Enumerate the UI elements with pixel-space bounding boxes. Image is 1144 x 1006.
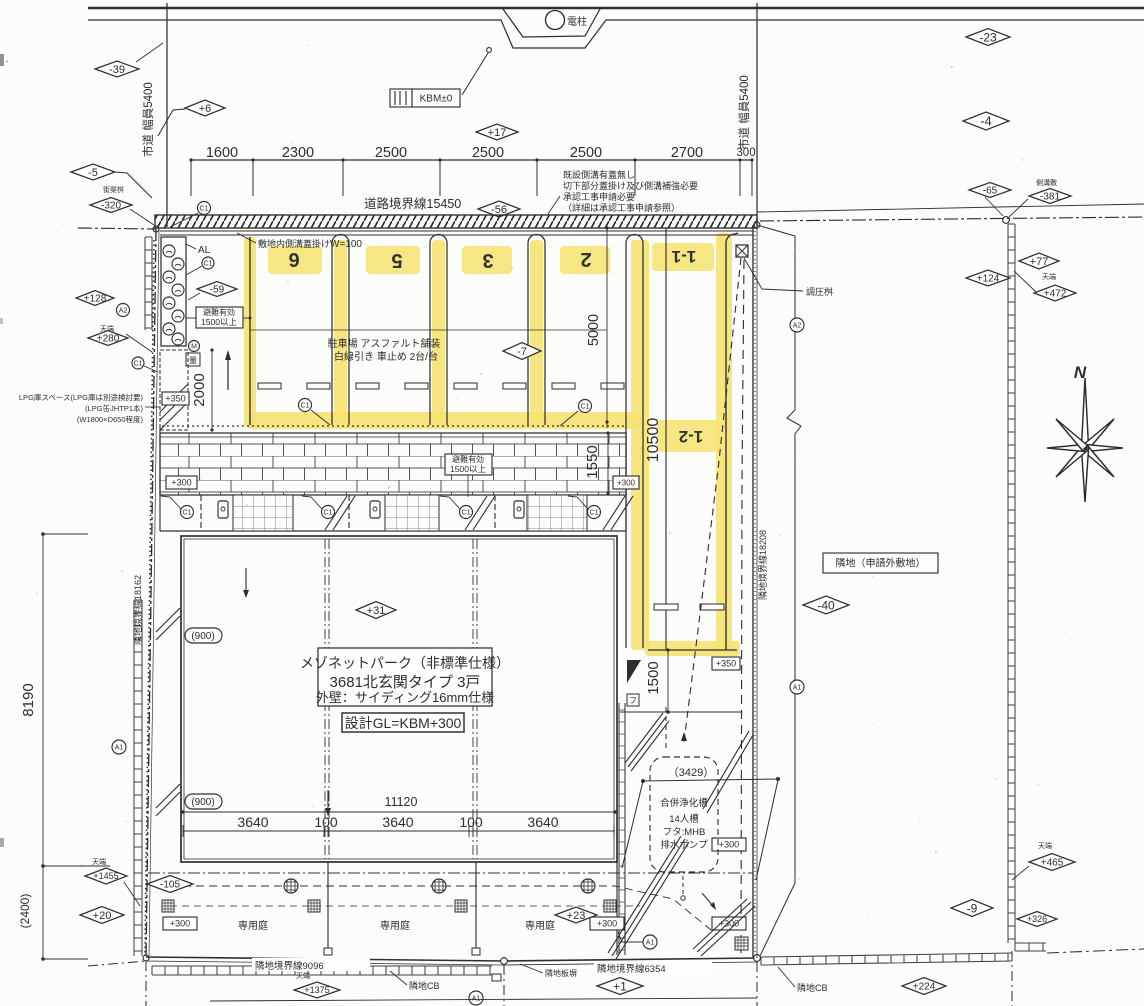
svg-text:（詳細は承認工事申請参照）: （詳細は承認工事申請参照） (563, 202, 680, 213)
svg-text:設計GL=KBM+300: 設計GL=KBM+300 (345, 715, 462, 731)
svg-text:道路境界線15450: 道路境界線15450 (364, 196, 461, 211)
svg-text:天端: 天端 (1042, 272, 1056, 281)
svg-text:LPG庫スペース(LPG庫は別途検討要): LPG庫スペース(LPG庫は別途検討要) (19, 392, 144, 402)
svg-text:-381: -381 (1040, 192, 1060, 203)
svg-text:A1: A1 (472, 996, 481, 1003)
svg-text:フタ:MHB: フタ:MHB (663, 827, 706, 838)
svg-text:300: 300 (736, 147, 755, 159)
svg-text:敷地内側溝蓋掛けW=100: 敷地内側溝蓋掛けW=100 (258, 238, 362, 250)
svg-text:隣地境界線9096: 隣地境界線9096 (255, 960, 324, 972)
svg-text:(900): (900) (191, 631, 214, 642)
svg-text:+300: +300 (719, 840, 739, 850)
svg-text:合併浄化槽: 合併浄化槽 (660, 797, 708, 809)
svg-text:専用庭: 専用庭 (238, 919, 268, 932)
svg-text:11120: 11120 (385, 795, 418, 809)
svg-text:+1455: +1455 (93, 871, 118, 881)
svg-text:1550: 1550 (584, 445, 601, 478)
svg-text:C1: C1 (462, 510, 471, 517)
svg-text:+1: +1 (613, 979, 627, 993)
svg-text:10500: 10500 (645, 418, 662, 463)
svg-text:1500以上: 1500以上 (450, 464, 486, 474)
svg-text:A2: A2 (793, 323, 802, 330)
svg-text:隣地（申請外敷地）: 隣地（申請外敷地） (836, 557, 926, 570)
svg-text:2700: 2700 (671, 145, 703, 161)
svg-text:(LPG缶JHTP1本): (LPG缶JHTP1本) (85, 403, 143, 413)
svg-text:+300: +300 (617, 478, 636, 487)
svg-text:避難有効: 避難有効 (452, 454, 484, 464)
svg-text:+1375: +1375 (304, 985, 329, 995)
svg-text:3: 3 (482, 249, 493, 271)
svg-text:量: 量 (189, 356, 197, 365)
svg-text:-5: -5 (88, 167, 98, 179)
svg-text:1500以上: 1500以上 (201, 317, 237, 327)
svg-text:+23: +23 (567, 910, 586, 922)
svg-text:電柱: 電柱 (567, 15, 587, 28)
svg-text:天端: 天端 (1038, 841, 1052, 850)
svg-text:-59: -59 (210, 285, 225, 296)
svg-text:(W1800×D650程度): (W1800×D650程度) (77, 414, 144, 424)
svg-text:+350: +350 (716, 659, 736, 669)
svg-text:2500: 2500 (472, 145, 504, 161)
svg-text:1500: 1500 (645, 661, 662, 694)
svg-text:N: N (1074, 363, 1087, 382)
svg-text:（3429）: （3429） (668, 766, 714, 779)
svg-text:+17: +17 (488, 127, 507, 139)
svg-text:市道 幅員5400: 市道 幅員5400 (737, 75, 751, 150)
svg-text:-56: -56 (491, 204, 507, 216)
svg-text:+77: +77 (1030, 256, 1049, 268)
svg-text:A1: A1 (793, 685, 802, 692)
svg-text:側溝敷: 側溝敷 (1036, 178, 1057, 187)
svg-text:-23: -23 (979, 30, 997, 44)
svg-text:(900): (900) (191, 797, 214, 808)
svg-text:-65: -65 (983, 186, 998, 197)
svg-text:-105: -105 (160, 880, 180, 891)
svg-text:(2400): (2400) (18, 894, 32, 929)
svg-text:外壁：サイディング16mm仕様: 外壁：サイディング16mm仕様 (316, 690, 494, 705)
svg-text:8190: 8190 (20, 683, 37, 716)
svg-text:街渠桝: 街渠桝 (103, 185, 124, 194)
svg-text:2: 2 (580, 248, 591, 270)
svg-text:3640: 3640 (237, 814, 268, 830)
svg-text:A1: A1 (646, 940, 655, 947)
svg-text:既設側溝有蓋無し: 既設側溝有蓋無し (563, 169, 635, 180)
svg-text:+6: +6 (199, 103, 212, 115)
svg-text:天端: 天端 (92, 857, 106, 866)
svg-text:5: 5 (391, 249, 402, 271)
svg-text:+300: +300 (170, 919, 190, 929)
svg-text:+300: +300 (597, 919, 617, 929)
svg-text:専用庭: 専用庭 (525, 919, 555, 932)
svg-text:天端: 天端 (296, 971, 310, 980)
svg-text:駐車場 アスファルト舗装: 駐車場 アスファルト舗装 (328, 337, 441, 350)
svg-text:2500: 2500 (375, 145, 407, 161)
svg-text:調圧桝: 調圧桝 (806, 286, 833, 297)
svg-text:+20: +20 (93, 910, 112, 922)
svg-text:1-2: 1-2 (679, 427, 704, 446)
svg-text:C1: C1 (590, 510, 599, 517)
svg-text:専用庭: 専用庭 (380, 919, 410, 932)
svg-text:2500: 2500 (570, 145, 602, 161)
svg-text:3681北玄関タイプ 3戸: 3681北玄関タイプ 3戸 (330, 674, 481, 691)
svg-text:隣地CB: 隣地CB (797, 982, 828, 993)
svg-text:1-1: 1-1 (672, 247, 697, 266)
svg-text:白線引き 車止め 2台/台: 白線引き 車止め 2台/台 (334, 350, 438, 363)
svg-text:切下部分蓋掛け及び側溝補強必要: 切下部分蓋掛け及び側溝補強必要 (563, 180, 698, 191)
svg-text:+128: +128 (84, 294, 107, 305)
svg-text:3640: 3640 (382, 814, 413, 830)
svg-text:A2: A2 (119, 308, 128, 315)
svg-text:100: 100 (314, 814, 338, 830)
svg-text:+350: +350 (165, 394, 185, 404)
svg-text:6: 6 (288, 248, 299, 270)
svg-text:100: 100 (459, 814, 483, 830)
svg-text:C1: C1 (581, 404, 590, 411)
svg-text:14人槽: 14人槽 (669, 813, 699, 825)
svg-text:+326: +326 (1027, 914, 1047, 924)
svg-text:C1: C1 (200, 206, 209, 213)
svg-text:C1: C1 (204, 261, 213, 268)
svg-text:2300: 2300 (282, 145, 314, 161)
svg-text:-9: -9 (967, 901, 978, 915)
svg-text:5000: 5000 (586, 314, 602, 346)
svg-text:隣地境界線6354: 隣地境界線6354 (597, 963, 666, 975)
svg-text:隣地境界線18162: 隣地境界線18162 (132, 575, 143, 645)
svg-text:+465: +465 (1041, 858, 1064, 869)
svg-text:承認工事申請必要: 承認工事申請必要 (563, 191, 635, 202)
svg-text:3640: 3640 (527, 814, 558, 830)
svg-text:1600: 1600 (206, 145, 238, 161)
svg-text:C1: C1 (183, 510, 192, 517)
svg-text:C1: C1 (134, 361, 143, 368)
svg-text:+300: +300 (171, 478, 191, 488)
svg-text:-39: -39 (109, 64, 125, 76)
svg-text:フ: フ (629, 696, 637, 705)
svg-text:C1: C1 (324, 510, 333, 517)
svg-text:C1: C1 (301, 403, 310, 410)
svg-text:AL: AL (198, 245, 211, 256)
svg-text:隣地板塀: 隣地板塀 (545, 968, 577, 978)
svg-text:+224: +224 (913, 982, 936, 993)
svg-text:+124: +124 (977, 274, 1000, 285)
svg-text:-40: -40 (817, 598, 835, 612)
svg-text:+280: +280 (97, 334, 120, 345)
svg-text:+31: +31 (367, 605, 386, 617)
svg-text:KBM±0: KBM±0 (420, 94, 453, 105)
svg-text:A1: A1 (115, 745, 124, 752)
svg-text:避難有効: 避難有効 (203, 307, 235, 317)
svg-text:-4: -4 (980, 114, 992, 129)
svg-text:隣地CB: 隣地CB (409, 980, 440, 991)
svg-text:-320: -320 (101, 201, 121, 212)
svg-text:市道 幅員5400: 市道 幅員5400 (141, 82, 155, 157)
svg-text:-7: -7 (517, 346, 527, 358)
svg-text:+472: +472 (1044, 289, 1067, 300)
svg-text:隣地境界線18208: 隣地境界線18208 (757, 530, 768, 600)
svg-text:2000: 2000 (191, 373, 208, 406)
svg-text:メゾネットパーク（非標準仕様）: メゾネットパーク（非標準仕様） (300, 655, 510, 671)
